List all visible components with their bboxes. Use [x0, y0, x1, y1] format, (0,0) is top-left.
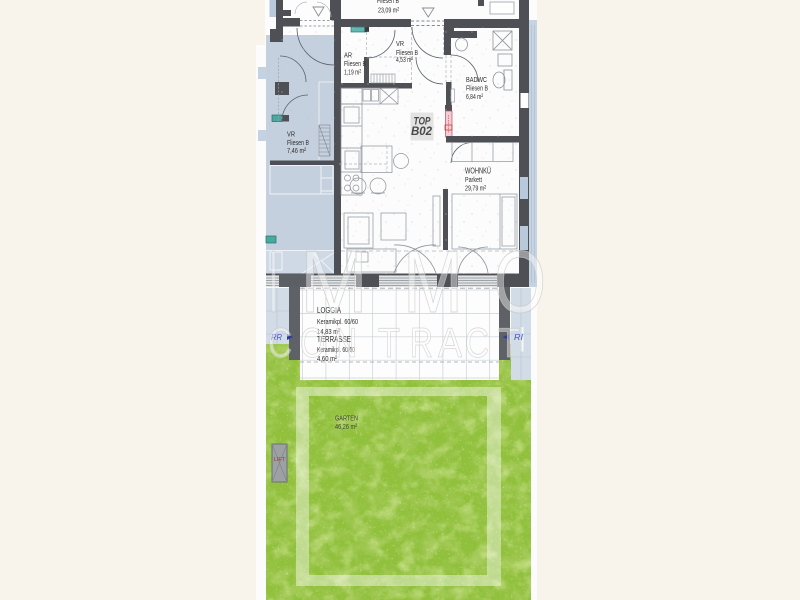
svg-text:N: N — [334, 319, 357, 366]
svg-text:T: T — [498, 319, 520, 366]
svg-text:46,26 m²: 46,26 m² — [335, 422, 357, 431]
svg-text:M: M — [403, 232, 463, 331]
svg-text:O: O — [300, 319, 325, 366]
svg-text:I: I — [269, 232, 278, 331]
svg-text:M: M — [300, 232, 368, 331]
svg-text:C: C — [465, 319, 489, 366]
svg-text:O: O — [494, 232, 546, 331]
svg-text:R: R — [410, 319, 433, 366]
svg-text:LIFT: LIFT — [274, 457, 287, 463]
svg-text:Fliesen B: Fliesen B — [377, 0, 399, 5]
svg-text:T: T — [378, 319, 400, 366]
svg-text:A: A — [438, 319, 462, 366]
svg-text:C: C — [268, 319, 292, 366]
svg-text:23,09 m²: 23,09 m² — [378, 6, 399, 15]
